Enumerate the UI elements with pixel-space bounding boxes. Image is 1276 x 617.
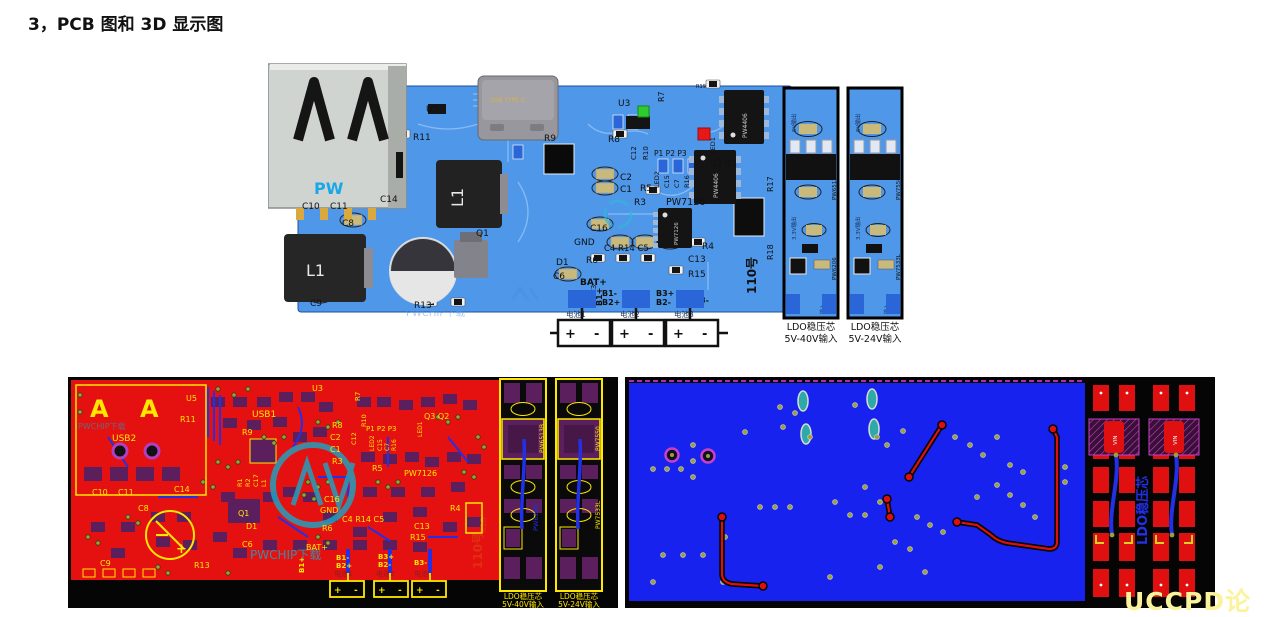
label-c7: C7: [384, 443, 391, 451]
battery-plus: +: [378, 586, 386, 596]
label-r17: R17: [766, 176, 775, 192]
label-usb1: USB1: [252, 410, 276, 420]
label-r10: R10: [642, 146, 650, 160]
battery-plus: +: [673, 327, 684, 342]
label-c8: C8: [138, 504, 149, 513]
inductor-L1-bottom: L1: [284, 234, 373, 302]
label-c12: C12: [350, 432, 358, 445]
label-c4r14c5: C4 R14 C5: [604, 244, 649, 254]
ic-marking: PW4406: [742, 113, 749, 138]
label-b1plus: B1+: [298, 557, 306, 573]
label-r13: R13: [194, 561, 210, 570]
component-r9-body: [544, 144, 574, 174]
battery-minus: -: [354, 586, 358, 596]
ldo-strip-bottom-2: VIN: [1149, 385, 1199, 597]
ldo2-caption-line1: LDO稳压芯: [851, 321, 900, 333]
page-title: 3，PCB 图和 3D 显示图: [28, 10, 223, 35]
pcb-top-layer-image: A A USB2 + PWCHIP下载 PWCHIP下载 U5 R11 USB1…: [68, 377, 618, 608]
label-c12: C12: [630, 146, 638, 160]
label-b3minus: B3-: [414, 559, 427, 567]
label-chip1: PW6513B: [539, 424, 546, 453]
label-chip1: PW6513B: [832, 173, 838, 200]
label-c6: C6: [553, 272, 565, 282]
green-led: [638, 106, 649, 117]
label-c2: C2: [330, 433, 341, 442]
label-chip2: PW6206: [832, 257, 838, 280]
label-ldo-text: LDO稳压芯: [1135, 476, 1151, 545]
label-r11: R11: [180, 415, 196, 424]
forum-watermark: UCCPD论坛: [1124, 582, 1276, 617]
label-r2: R2: [244, 478, 252, 487]
label-q3q2: Q3 Q2: [710, 159, 737, 169]
document-page: 3，PCB 图和 3D 显示图: [0, 0, 1276, 617]
label-a-right: A: [140, 395, 159, 423]
label-r18: R18: [766, 244, 775, 260]
label-b1minus: B1-: [602, 289, 617, 298]
label-a-left: A: [90, 395, 109, 423]
label-r6: R6: [586, 256, 598, 266]
label-d1: D1: [556, 258, 569, 268]
ldo-strip-top-1: PW6513B PW6206: [500, 379, 546, 591]
label-r16: R16: [391, 439, 398, 451]
label-r18: R18: [479, 517, 488, 533]
label-c13: C13: [688, 255, 706, 265]
label-batplus: BAT+: [306, 543, 328, 552]
label-r8: R8: [332, 421, 343, 430]
label-vin: VIN: [1173, 436, 1179, 446]
label-b3plus: B3+: [656, 289, 674, 298]
label-r7: R7: [354, 392, 362, 401]
label-r4: R4: [450, 504, 461, 513]
label-board-number: 110号: [744, 257, 759, 294]
label-c7: C7: [673, 179, 681, 188]
battery-plus: +: [416, 586, 424, 596]
label-r3: R3: [332, 457, 343, 466]
battery-terminal-diagram: 电池1 电池2 电池3 + - + - + -: [550, 290, 728, 346]
battery-minus: -: [648, 327, 653, 342]
label-c1: C1: [330, 445, 341, 454]
label-c6: C6: [242, 540, 253, 549]
label-b2plus: B2+: [602, 298, 620, 307]
label-chip1: PW7550: [595, 426, 602, 451]
battery-box-1: + -: [558, 320, 610, 346]
label-batplus: BAT+: [580, 278, 607, 288]
battery-minus: -: [702, 327, 707, 342]
label-led1: LED1: [417, 421, 424, 437]
label-pw7126: PW7126: [404, 469, 437, 478]
label-chip2: PW6206: [532, 504, 540, 531]
label-r6: R6: [322, 524, 333, 533]
label-r5: R5: [372, 464, 383, 473]
label-c10: C10: [92, 488, 108, 497]
ic-marking: PW4406: [713, 173, 720, 198]
bottom-copper-pour: [629, 383, 1085, 601]
label-r8: R8: [608, 135, 620, 145]
label-c15: C15: [663, 175, 671, 188]
label-b2minus: B2-: [378, 561, 391, 569]
label-3v3-out: 3.3V输出: [790, 216, 798, 240]
label-c9: C9: [310, 299, 322, 309]
label-c11: C11: [118, 488, 134, 497]
label-d1: D1: [246, 522, 257, 531]
label-r13: R13: [414, 301, 432, 311]
label-r15: R15: [688, 270, 706, 280]
battery-box-3: + -: [666, 320, 718, 346]
pcb-bottom-layer-image: VIN VIN LDO稳压芯: [625, 377, 1215, 608]
label-led1: LED1: [709, 137, 717, 154]
ic-marking: PW7126: [674, 222, 680, 245]
label-b1minus: B1-: [336, 554, 349, 562]
label-r9: R9: [242, 428, 253, 437]
label-battery2: 电池2: [376, 569, 394, 578]
label-l1: L1: [260, 479, 268, 487]
label-3v3-out: 3.3V输出: [854, 216, 862, 240]
label-c14: C14: [174, 485, 190, 494]
label-r11: R11: [413, 133, 431, 143]
pwchip-watermark: PWCHIP下载: [78, 421, 126, 431]
label-r3: R3: [634, 198, 646, 208]
label-q1: Q1: [238, 509, 249, 518]
pcb-3d-image: PW USB TYPE C L1 L1: [268, 62, 940, 348]
inductor-label: L1: [306, 261, 325, 280]
label-vin: VIN: [1113, 436, 1119, 446]
battery-minus: -: [436, 586, 440, 596]
label-c16: C16: [324, 495, 340, 504]
battery-minus: -: [594, 327, 599, 342]
battery-box-2: + -: [612, 320, 664, 346]
usb-c-connector: USB TYPE C: [478, 76, 558, 140]
label-c13: C13: [414, 522, 430, 531]
label-q3q2: Q3 Q2: [424, 412, 449, 421]
label-r1: R1: [236, 478, 244, 487]
label-c8: C8: [342, 219, 354, 229]
label-c15: C15: [377, 439, 384, 451]
label-chip2: PW7533L: [896, 253, 902, 280]
label-usb2: USB2: [112, 434, 136, 444]
component-r17-body: [734, 198, 764, 236]
ldo1-caption-line1: LDO稳压芯: [787, 321, 836, 333]
label-chip1: PW7550: [896, 177, 902, 200]
label-r9: R9: [544, 134, 556, 144]
electrolytic-capacitor: [390, 238, 456, 304]
label-b2plus: B2+: [336, 562, 352, 570]
battery-minus: -: [398, 586, 402, 596]
label-c17: C17: [252, 474, 260, 487]
label-b2minus: B2-: [656, 298, 671, 307]
label-battery1: 电池1: [334, 569, 352, 578]
ldo1-caption-line2: 5V-40V输入: [502, 599, 544, 608]
label-board-number: 110号: [470, 532, 485, 569]
polarity-plus: +: [176, 542, 187, 557]
label-r16: R16: [683, 175, 691, 188]
label-c11: C11: [330, 202, 348, 212]
label-r4: R4: [702, 242, 714, 252]
label-b3plus: B3+: [378, 553, 394, 561]
label-r19: R19: [696, 84, 706, 90]
label-led2: LED2: [653, 171, 661, 188]
label-r7: R7: [657, 91, 666, 102]
label-c10: C10: [302, 202, 320, 212]
ldo-strip-top-2: PW7550 PW7533L: [556, 379, 602, 591]
label-u3: U3: [618, 99, 630, 109]
sot23-u3: [626, 116, 650, 129]
ic-pw7126: PW7126: [653, 208, 692, 248]
label-r15: R15: [410, 533, 426, 542]
label-c9: C9: [100, 559, 111, 568]
battery-plus: +: [619, 327, 630, 342]
ic-pw4406-1: PW4406: [719, 90, 769, 144]
inductor-L1-top: L1: [436, 160, 508, 228]
label-c16: C16: [590, 224, 608, 234]
ldo-strip-captions: LDO稳压芯 5V-40V输入 LDO稳压芯 5V-24V输入: [784, 321, 902, 345]
label-gnd: GND: [574, 238, 595, 248]
label-q1: Q1: [476, 229, 489, 239]
ldo-chip-body: [850, 154, 900, 180]
ldo-strip-bottom-1: VIN: [1089, 385, 1139, 597]
ldo1-caption-line2: 5V-40V输入: [784, 333, 838, 345]
label-u5: U5: [426, 105, 438, 115]
label-r5: R5: [640, 184, 652, 194]
label-p1p2p3: P1 P2 P3: [654, 149, 687, 158]
ldo-strip-3d-2: 5V输出 PW7550 3.3V输出 PW7533L 输入 输入: [848, 88, 902, 318]
usb-a-port-label: PW: [314, 179, 344, 198]
battery-plus: +: [565, 327, 576, 342]
ldo2-caption-line2: 5V-24V输入: [558, 599, 600, 608]
usb-c-label: USB TYPE C: [490, 97, 525, 104]
label-pw7126: PW7126: [666, 197, 705, 208]
label-u3: U3: [312, 384, 323, 393]
battery-plus: +: [334, 586, 342, 596]
ldo-chip-body: [786, 154, 836, 180]
label-c4r14c5: C4 R14 C5: [342, 515, 384, 524]
label-gnd: GND: [320, 506, 338, 515]
ldo-strip-3d-1: 5V输出 PW6513B 3.3V输出 PW6206 输入 输入: [784, 88, 838, 318]
label-u5: U5: [186, 394, 197, 403]
label-c2: C2: [620, 173, 632, 183]
label-p1p2p3: P1 P2 P3: [366, 425, 396, 433]
label-chip2: PW7533L: [595, 500, 602, 529]
label-led2: LED2: [369, 435, 376, 451]
inductor-label: L1: [448, 188, 467, 207]
ldo2-caption-line2: 5V-24V输入: [848, 333, 902, 345]
label-c14: C14: [380, 195, 398, 205]
label-c1: C1: [620, 185, 632, 195]
